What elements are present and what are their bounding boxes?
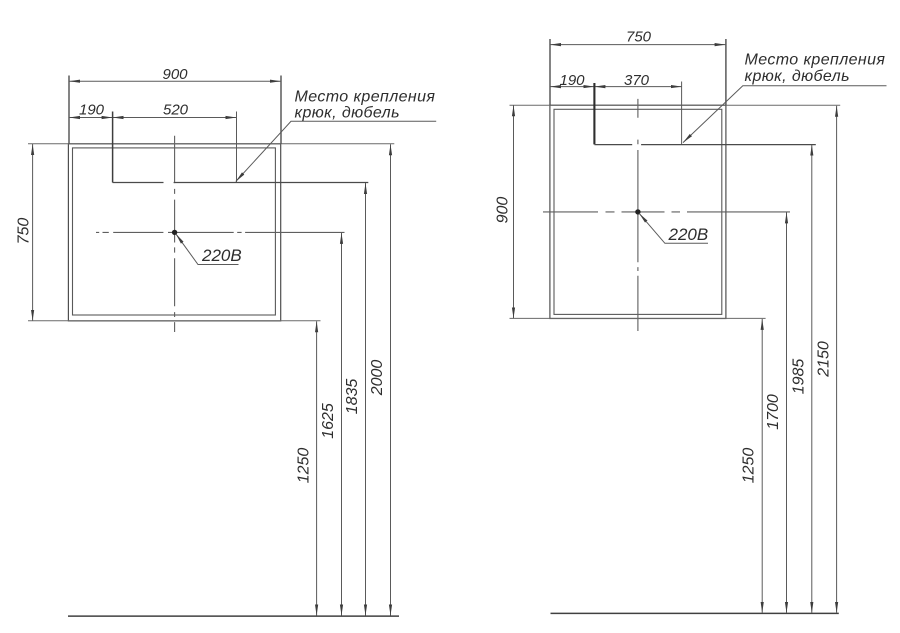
svg-text:2150: 2150 (815, 341, 832, 378)
svg-text:2000: 2000 (369, 360, 386, 397)
svg-text:750: 750 (15, 218, 32, 245)
svg-text:1625: 1625 (320, 403, 337, 439)
svg-text:190: 190 (79, 101, 105, 118)
svg-text:520: 520 (163, 101, 189, 118)
svg-text:1250: 1250 (295, 448, 312, 484)
svg-text:1700: 1700 (765, 394, 782, 430)
svg-text:220В: 220В (668, 225, 709, 244)
svg-text:900: 900 (494, 197, 511, 224)
svg-text:1250: 1250 (741, 448, 758, 484)
svg-text:1835: 1835 (344, 379, 361, 415)
svg-text:190: 190 (559, 72, 585, 89)
svg-text:900: 900 (162, 66, 188, 83)
svg-text:Место крепления: Место крепления (745, 52, 886, 69)
svg-text:750: 750 (626, 28, 652, 45)
svg-text:крюк, дюбель: крюк, дюбель (295, 105, 400, 122)
svg-text:1985: 1985 (791, 359, 808, 395)
svg-text:370: 370 (624, 72, 650, 89)
svg-text:Место крепления: Место крепления (295, 89, 436, 106)
svg-text:220В: 220В (201, 246, 242, 265)
svg-text:крюк, дюбель: крюк, дюбель (745, 68, 850, 85)
